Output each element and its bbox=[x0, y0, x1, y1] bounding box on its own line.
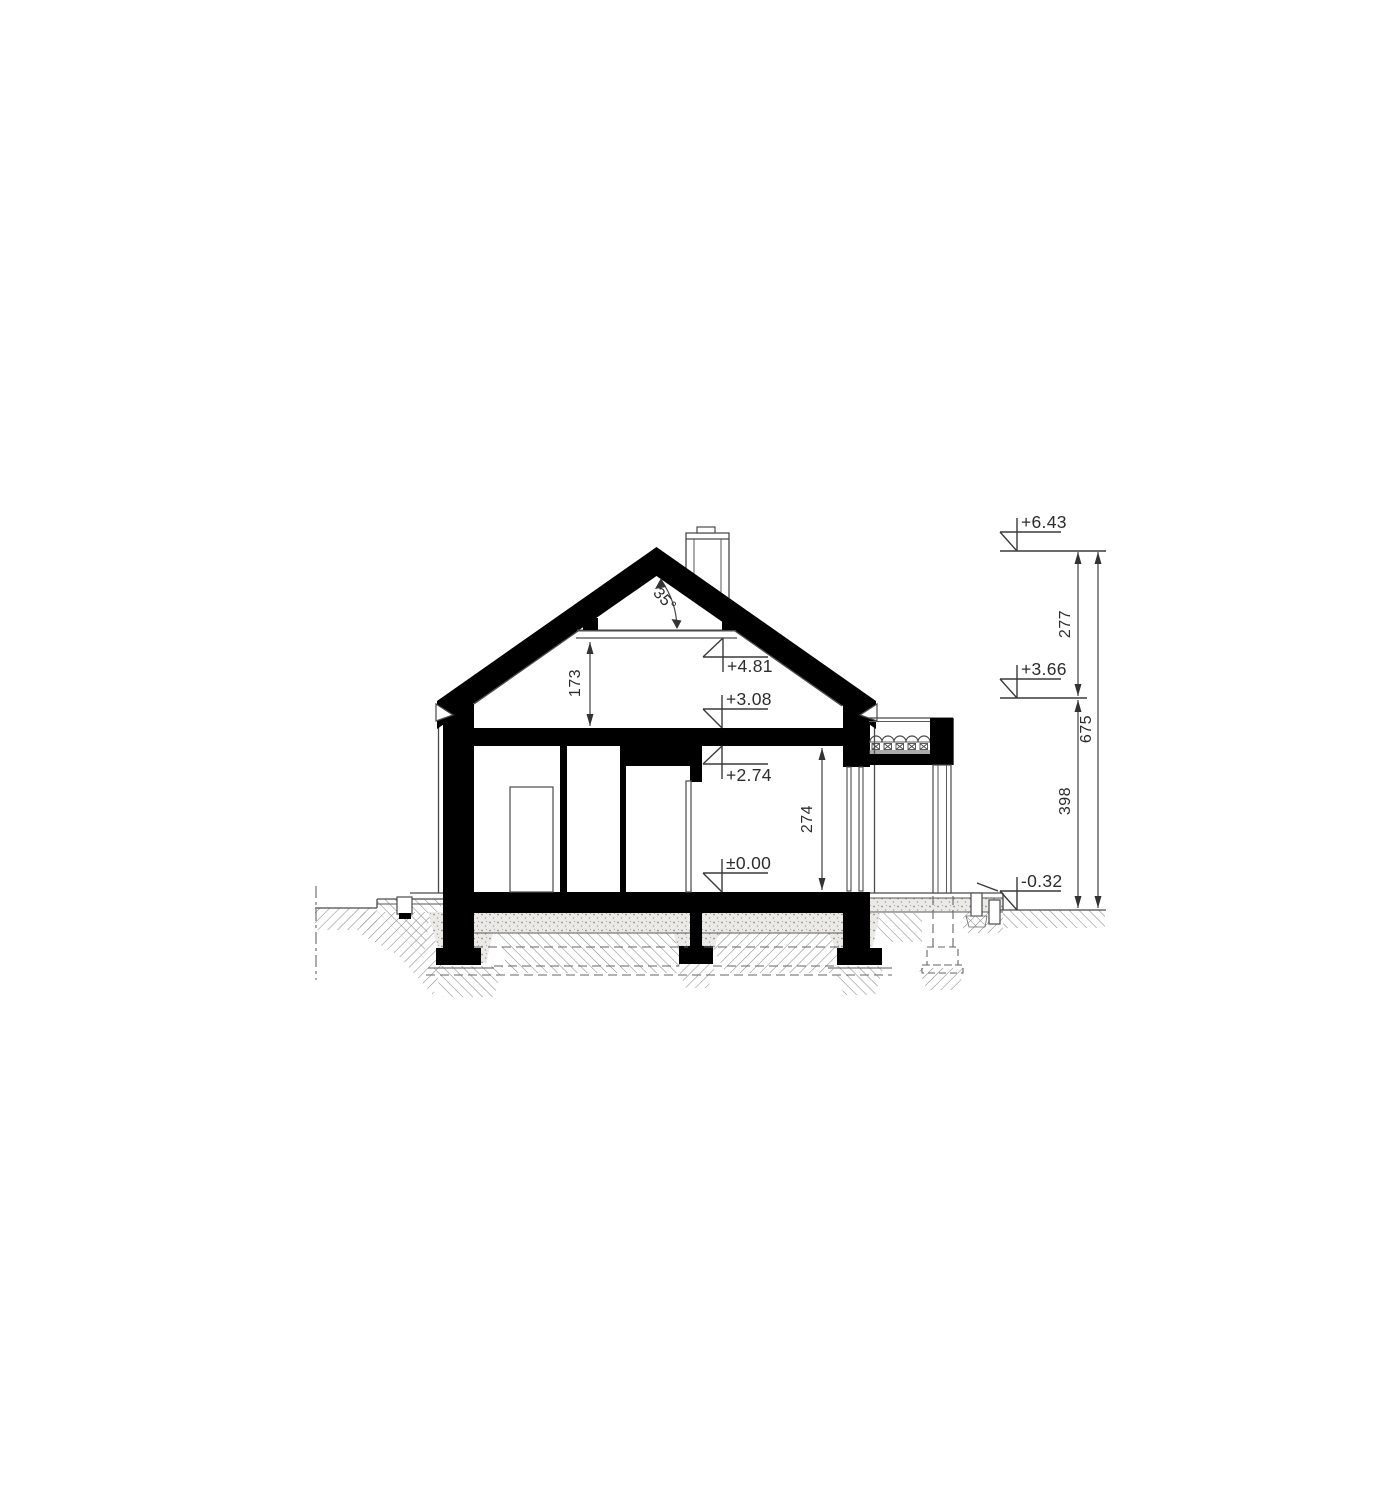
porch-ceiling-beam bbox=[869, 754, 930, 765]
level-floor-label: ±0.00 bbox=[726, 853, 771, 873]
level-terrace-label: -0.32 bbox=[1021, 871, 1062, 891]
terrace-edge-post bbox=[971, 893, 982, 916]
path-curb bbox=[397, 897, 412, 914]
right-footing bbox=[837, 948, 882, 965]
section-drawing: +6.43 +3.66 -0.32 +4.81 +3.08 bbox=[0, 0, 1400, 1485]
chimney-cap bbox=[697, 527, 715, 533]
porch-column bbox=[933, 765, 951, 893]
dim-eave-terrace-label: 398 bbox=[1057, 787, 1074, 815]
level-collar-label: +4.81 bbox=[727, 656, 773, 676]
door-leaf bbox=[686, 781, 691, 892]
wall-over-door bbox=[690, 746, 702, 782]
partition-wall bbox=[560, 746, 567, 892]
terrace-edge-post bbox=[989, 900, 1000, 924]
drawing-canvas: +6.43 +3.66 -0.32 +4.81 +3.08 bbox=[0, 0, 1400, 1485]
left-foundation-wall bbox=[443, 913, 474, 950]
floor-slab bbox=[443, 892, 870, 913]
left-footing bbox=[436, 948, 481, 965]
ceiling-slab bbox=[443, 728, 870, 746]
level-ridge-label: +6.43 bbox=[1021, 512, 1067, 532]
dim-attic-height-label: 173 bbox=[567, 669, 584, 697]
right-foundation-wall bbox=[843, 913, 870, 950]
dim-room-height-label: 274 bbox=[799, 805, 816, 833]
porch-edge-beam bbox=[930, 718, 953, 765]
partition-wall bbox=[620, 746, 626, 892]
dim-ridge-eave-label: 277 bbox=[1057, 610, 1074, 638]
level-ceiling-top-label: +3.08 bbox=[726, 689, 772, 709]
purlin bbox=[722, 618, 737, 630]
dim-total-height-label: 675 bbox=[1078, 715, 1095, 743]
middle-footing bbox=[679, 946, 713, 964]
level-ceiling-bottom-label: +2.74 bbox=[726, 765, 772, 785]
level-eave-label: +3.66 bbox=[1021, 659, 1067, 679]
door-elevation bbox=[510, 787, 553, 892]
purlin bbox=[583, 618, 598, 630]
middle-foundation-wall bbox=[690, 913, 702, 948]
